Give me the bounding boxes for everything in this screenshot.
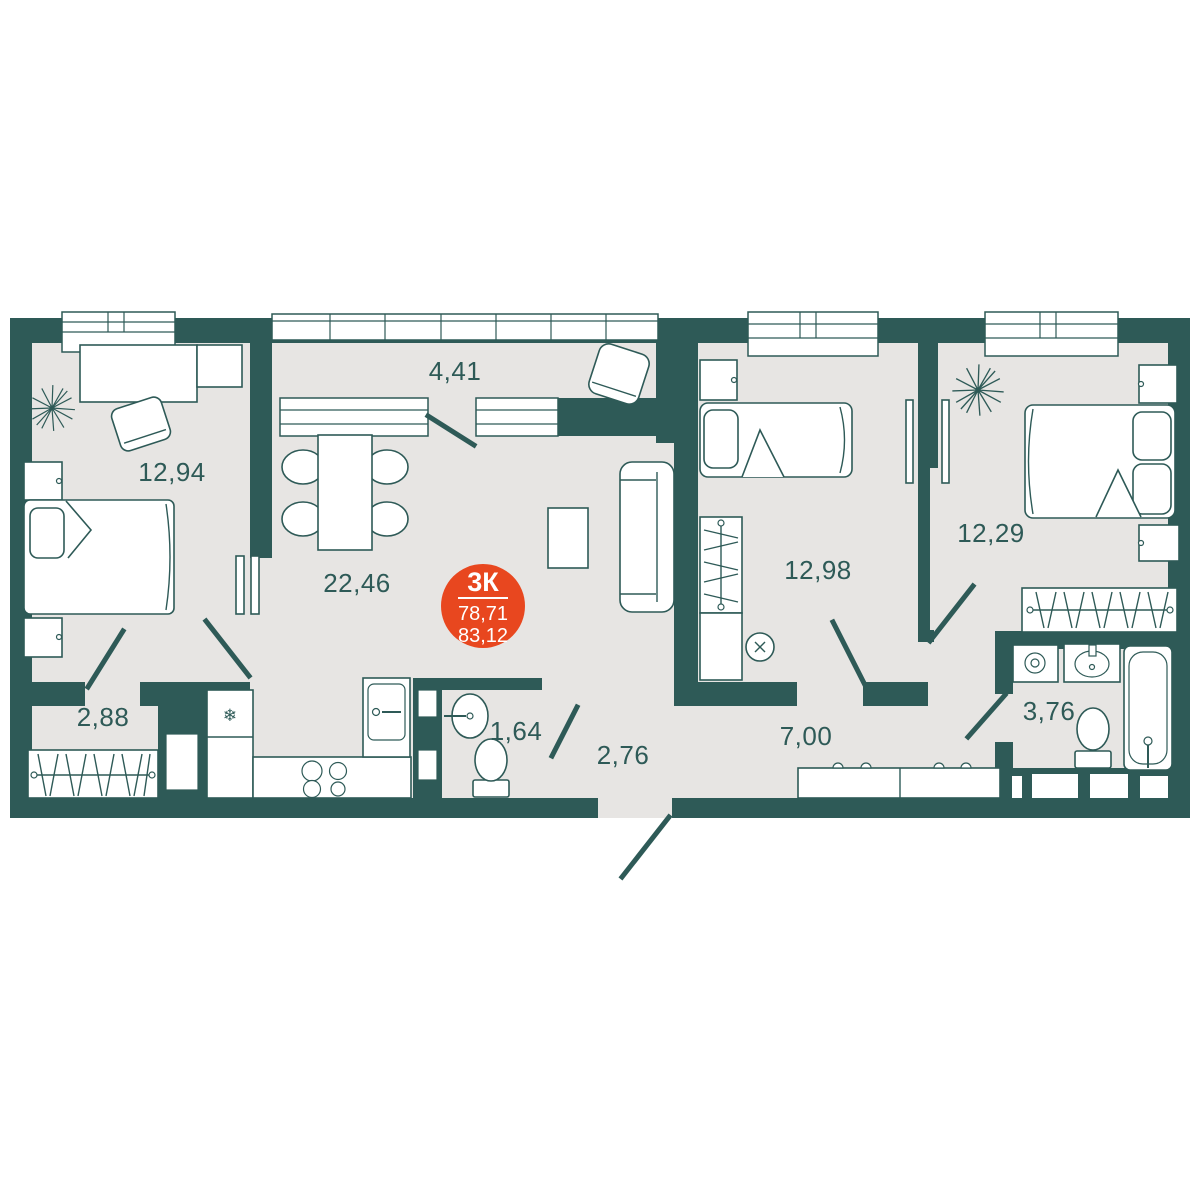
hook (833, 763, 843, 768)
room-label-bedroom-2: 12,98 (784, 555, 852, 585)
room-label-hallway: 2,76 (597, 740, 650, 770)
stool (746, 633, 774, 661)
sliding-door-leaf-1 (906, 400, 913, 483)
bed-single (24, 500, 174, 614)
door-leaf-living-1 (236, 556, 244, 614)
entrance-door-leaf (622, 817, 669, 877)
badge-type-label: 3К (467, 567, 499, 597)
washing-machine (1013, 645, 1058, 682)
room-label-bathroom-main: 3,76 (1023, 696, 1076, 726)
nightstand-knob (1139, 541, 1144, 546)
nightstand-knob (732, 378, 737, 383)
coffee-table (548, 508, 588, 568)
shelf (197, 345, 242, 387)
door-leaf-living-2 (251, 556, 259, 614)
nightstand (1139, 365, 1177, 403)
hook (861, 763, 871, 768)
room-label-bathroom-guest: 1,64 (490, 716, 543, 746)
bed-single (700, 403, 852, 477)
room-label-living-kitchen: 22,46 (323, 568, 391, 598)
snowflake-icon: ❄ (223, 706, 237, 726)
corridor-cabinet (798, 763, 1000, 798)
badge-total-area: 83,12 (458, 625, 508, 647)
bathtub (1124, 646, 1172, 770)
room-label-bedroom-1: 12,94 (138, 457, 206, 487)
floor-plan-page: ❄ (0, 0, 1199, 1199)
toilet (1075, 708, 1111, 768)
window-bedroom-2 (748, 312, 878, 356)
toilet (473, 739, 509, 797)
kitchen-sink (363, 678, 410, 757)
wardrobe-hall-closet (28, 750, 158, 798)
sofa (620, 462, 674, 612)
entrance-opening (598, 798, 672, 818)
bed-double (1025, 405, 1175, 518)
wardrobe (1022, 588, 1177, 632)
window-bedroom-3 (985, 312, 1118, 356)
hook (961, 763, 971, 768)
wardrobe (700, 517, 742, 613)
cabinet (700, 613, 742, 680)
nightstand (1139, 525, 1179, 561)
loggia-inner-window-left (280, 398, 428, 436)
floor-plan: ❄ (0, 0, 1199, 1199)
nightstand-knob (57, 479, 62, 484)
room-label-wardrobe-hall: 2,88 (77, 702, 130, 732)
dining-table (318, 435, 372, 550)
nightstand-knob (57, 635, 62, 640)
hook (934, 763, 944, 768)
desk (80, 345, 197, 402)
apartment-badge: 3К 78,71 83,12 (441, 564, 525, 648)
fridge: ❄ (207, 690, 253, 798)
room-label-corridor: 7,00 (780, 721, 833, 751)
sink (1064, 644, 1120, 682)
sliding-door-leaf-2 (942, 400, 949, 483)
loggia-inner-window-right (476, 398, 558, 436)
nightstand-knob (1139, 382, 1144, 387)
badge-living-area: 78,71 (458, 603, 508, 625)
window-loggia (272, 314, 658, 340)
room-label-loggia: 4,41 (429, 356, 482, 386)
room-label-bedroom-3: 12,29 (957, 518, 1025, 548)
